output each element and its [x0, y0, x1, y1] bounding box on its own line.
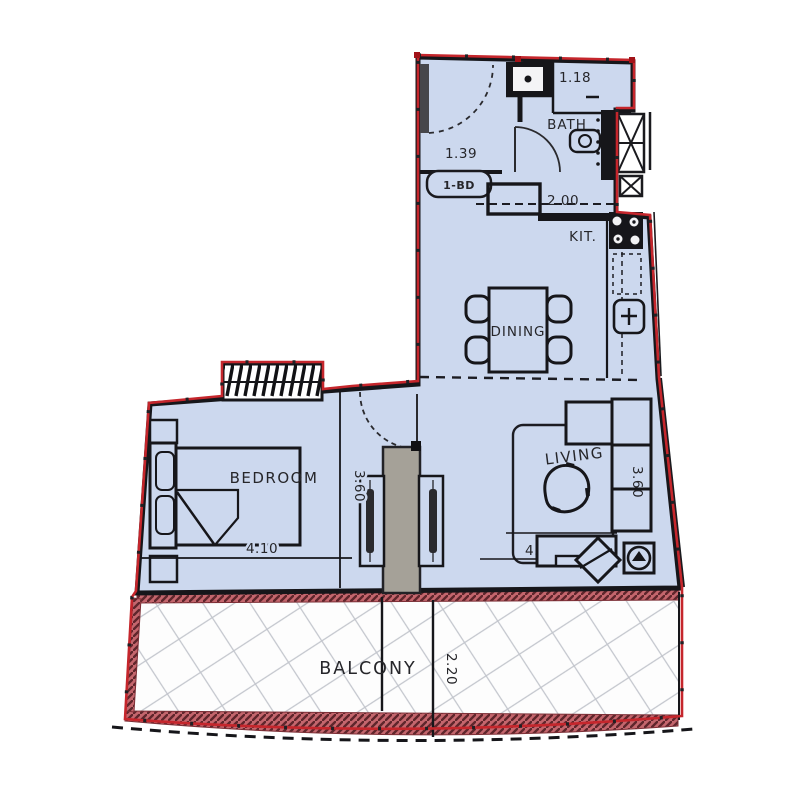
unit-type-badge-label: 1-BD [443, 179, 475, 192]
structural-column [383, 447, 420, 593]
kitchen-sink-icon [614, 300, 644, 333]
door-hinge-icon [411, 441, 421, 451]
washer-door-icon [525, 76, 532, 83]
balcony-depth-dim: 2.20 [443, 653, 459, 685]
pillow-icon [156, 452, 174, 490]
nightstand-top-icon [150, 420, 177, 443]
shower-width-dim: 1.18 [559, 70, 591, 86]
floor-plan-page: BALCONY 2.20 1.39 1-BD 1.18 BATH [0, 0, 800, 800]
bedroom-label: BEDROOM [230, 469, 319, 487]
floor-fixture-icon [624, 543, 654, 573]
stove-icon [609, 212, 643, 249]
entry-door-leaf-icon [420, 64, 429, 133]
wardrobe-right-icon [419, 476, 443, 566]
dining-label: DINING [490, 324, 545, 340]
balcony-area: BALCONY 2.20 [112, 588, 694, 741]
floor-plan-svg: BALCONY 2.20 1.39 1-BD 1.18 BATH [0, 0, 800, 800]
balcony-label: BALCONY [319, 659, 417, 679]
corridor-depth-dim: 3.60 [351, 470, 367, 502]
bath-east-wall [601, 110, 616, 180]
ac-ledge-hatch [223, 364, 322, 400]
basin-icon [570, 130, 600, 152]
bedroom-width-dim: 4.10 [246, 541, 278, 557]
living-depth-dim: 3.60 [629, 466, 645, 498]
kitchen-label: KIT. [569, 229, 597, 245]
bath-south-wall [538, 213, 616, 221]
entry-width-dim: 1.39 [445, 146, 477, 162]
kitchen-run-dim: 2.00 [547, 193, 579, 209]
pillow-icon [156, 496, 174, 534]
service-shaft-icon [618, 112, 650, 196]
coffee-table-icon [545, 465, 589, 511]
nightstand-bottom-icon [150, 556, 177, 582]
